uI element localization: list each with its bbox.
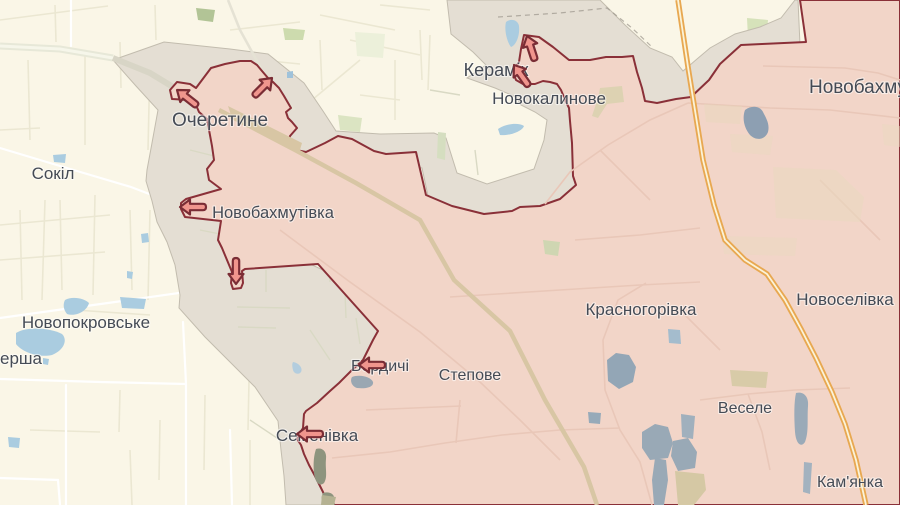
svg-text:Сокіл: Сокіл: [32, 164, 75, 183]
svg-text:Новоселівка: Новоселівка: [796, 290, 894, 309]
svg-text:Очеретине: Очеретине: [172, 110, 268, 131]
svg-text:Новопокровське: Новопокровське: [22, 313, 150, 332]
svg-text:Новокалинове: Новокалинове: [492, 89, 606, 108]
svg-text:Веселе: Веселе: [718, 400, 772, 417]
svg-text:Новобахмутка: Новобахмутка: [809, 77, 900, 98]
svg-text:Красногорівка: Красногорівка: [586, 300, 698, 319]
svg-text:Кам'янка: Кам'янка: [817, 474, 883, 491]
svg-text:ерша: ерша: [0, 349, 43, 368]
svg-text:Новобахмутівка: Новобахмутівка: [212, 204, 335, 222]
svg-text:Степове: Степове: [439, 367, 501, 384]
